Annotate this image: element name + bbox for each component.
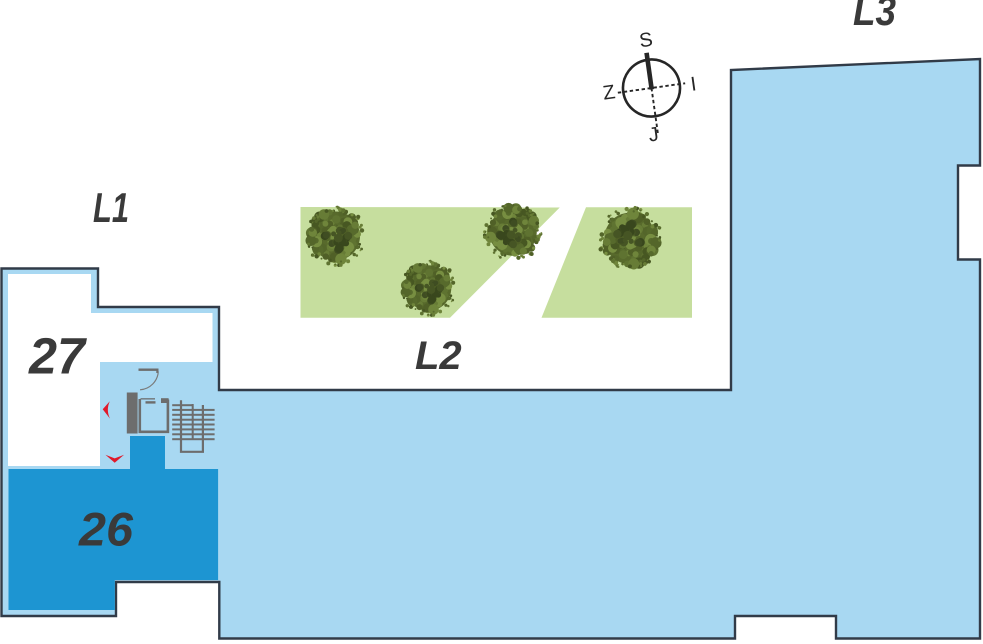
svg-text:26: 26 <box>78 503 134 556</box>
svg-text:L2: L2 <box>415 334 462 378</box>
svg-text:27: 27 <box>28 328 88 385</box>
svg-text:L1: L1 <box>93 184 129 231</box>
svg-text:L3: L3 <box>853 0 896 34</box>
